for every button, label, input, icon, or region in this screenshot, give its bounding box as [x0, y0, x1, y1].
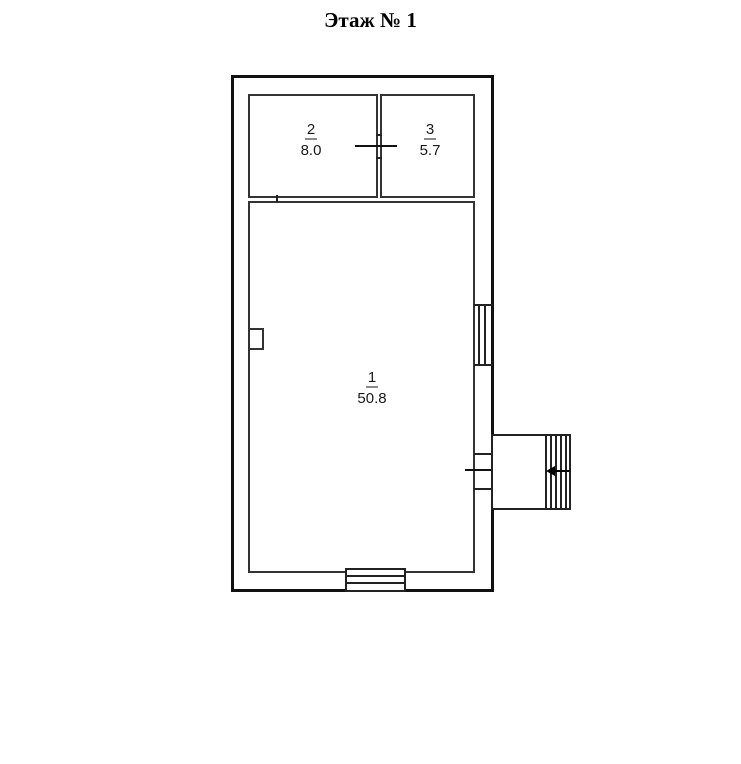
porch-step-line [555, 435, 557, 509]
window-bottom-pane-line [347, 582, 404, 584]
entrance-arrow-icon [546, 466, 555, 476]
floor-title: Этаж № 1 [0, 8, 741, 33]
room-2-area: 8.0 [281, 143, 341, 158]
interior-door-line [355, 145, 397, 147]
room-3-area: 5.7 [400, 143, 460, 158]
door-jamb-tick [376, 157, 382, 159]
floor-plan-canvas: Этаж № 1 1 50.8 2 8.0 3 5.7 [0, 0, 741, 764]
window-bottom [345, 568, 406, 592]
room-3-number: 3 [424, 122, 436, 140]
room-2-number: 2 [305, 122, 317, 140]
room-1-area: 50.8 [342, 391, 402, 406]
entrance-arrow-shaft [554, 470, 570, 472]
room-1-number: 1 [366, 370, 378, 388]
wall-joint-tick [276, 195, 278, 202]
stove-niche [248, 328, 264, 350]
window-bottom-pane-line [347, 575, 404, 577]
porch-step-line [565, 435, 567, 509]
room-2-label: 2 8.0 [281, 122, 341, 158]
room-3-label: 3 5.7 [400, 122, 460, 158]
entrance-porch [491, 434, 571, 510]
window-right-pane-line [484, 304, 486, 366]
door-jamb-tick [376, 134, 382, 136]
porch-step-line [560, 435, 562, 509]
room-1-label: 1 50.8 [342, 370, 402, 406]
window-right-pane-line [478, 304, 480, 366]
